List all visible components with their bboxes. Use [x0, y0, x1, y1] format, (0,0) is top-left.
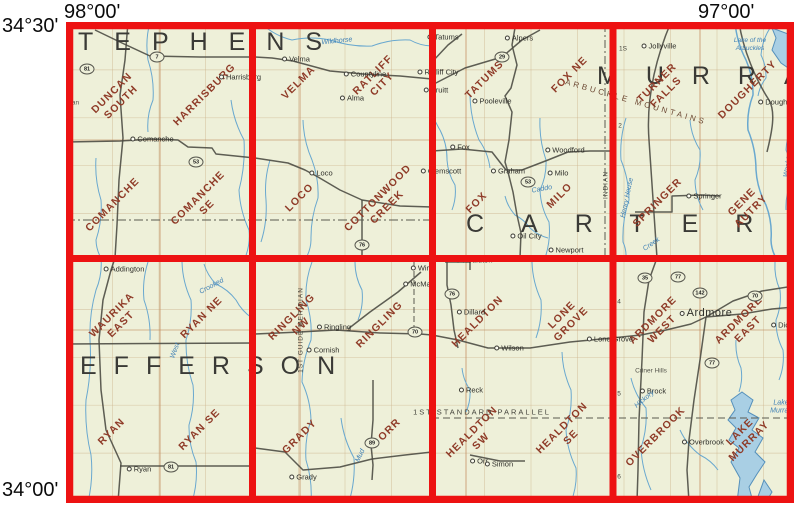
longitude-label-east: 97°00' [698, 1, 754, 24]
quadrangle-index-grid [66, 22, 794, 503]
map-index-screenshot: 98°00' 97°00' 34°30' 34°00' TEPHENSEFFER… [0, 0, 800, 509]
latitude-label-south: 34°00' [2, 479, 58, 502]
longitude-label-west: 98°00' [64, 1, 120, 24]
quadrangle-map-area[interactable]: TEPHENSEFFERSONCARTERMURRAYDUNCAN SOUTHH… [66, 22, 794, 503]
latitude-label-north: 34°30' [2, 15, 58, 38]
